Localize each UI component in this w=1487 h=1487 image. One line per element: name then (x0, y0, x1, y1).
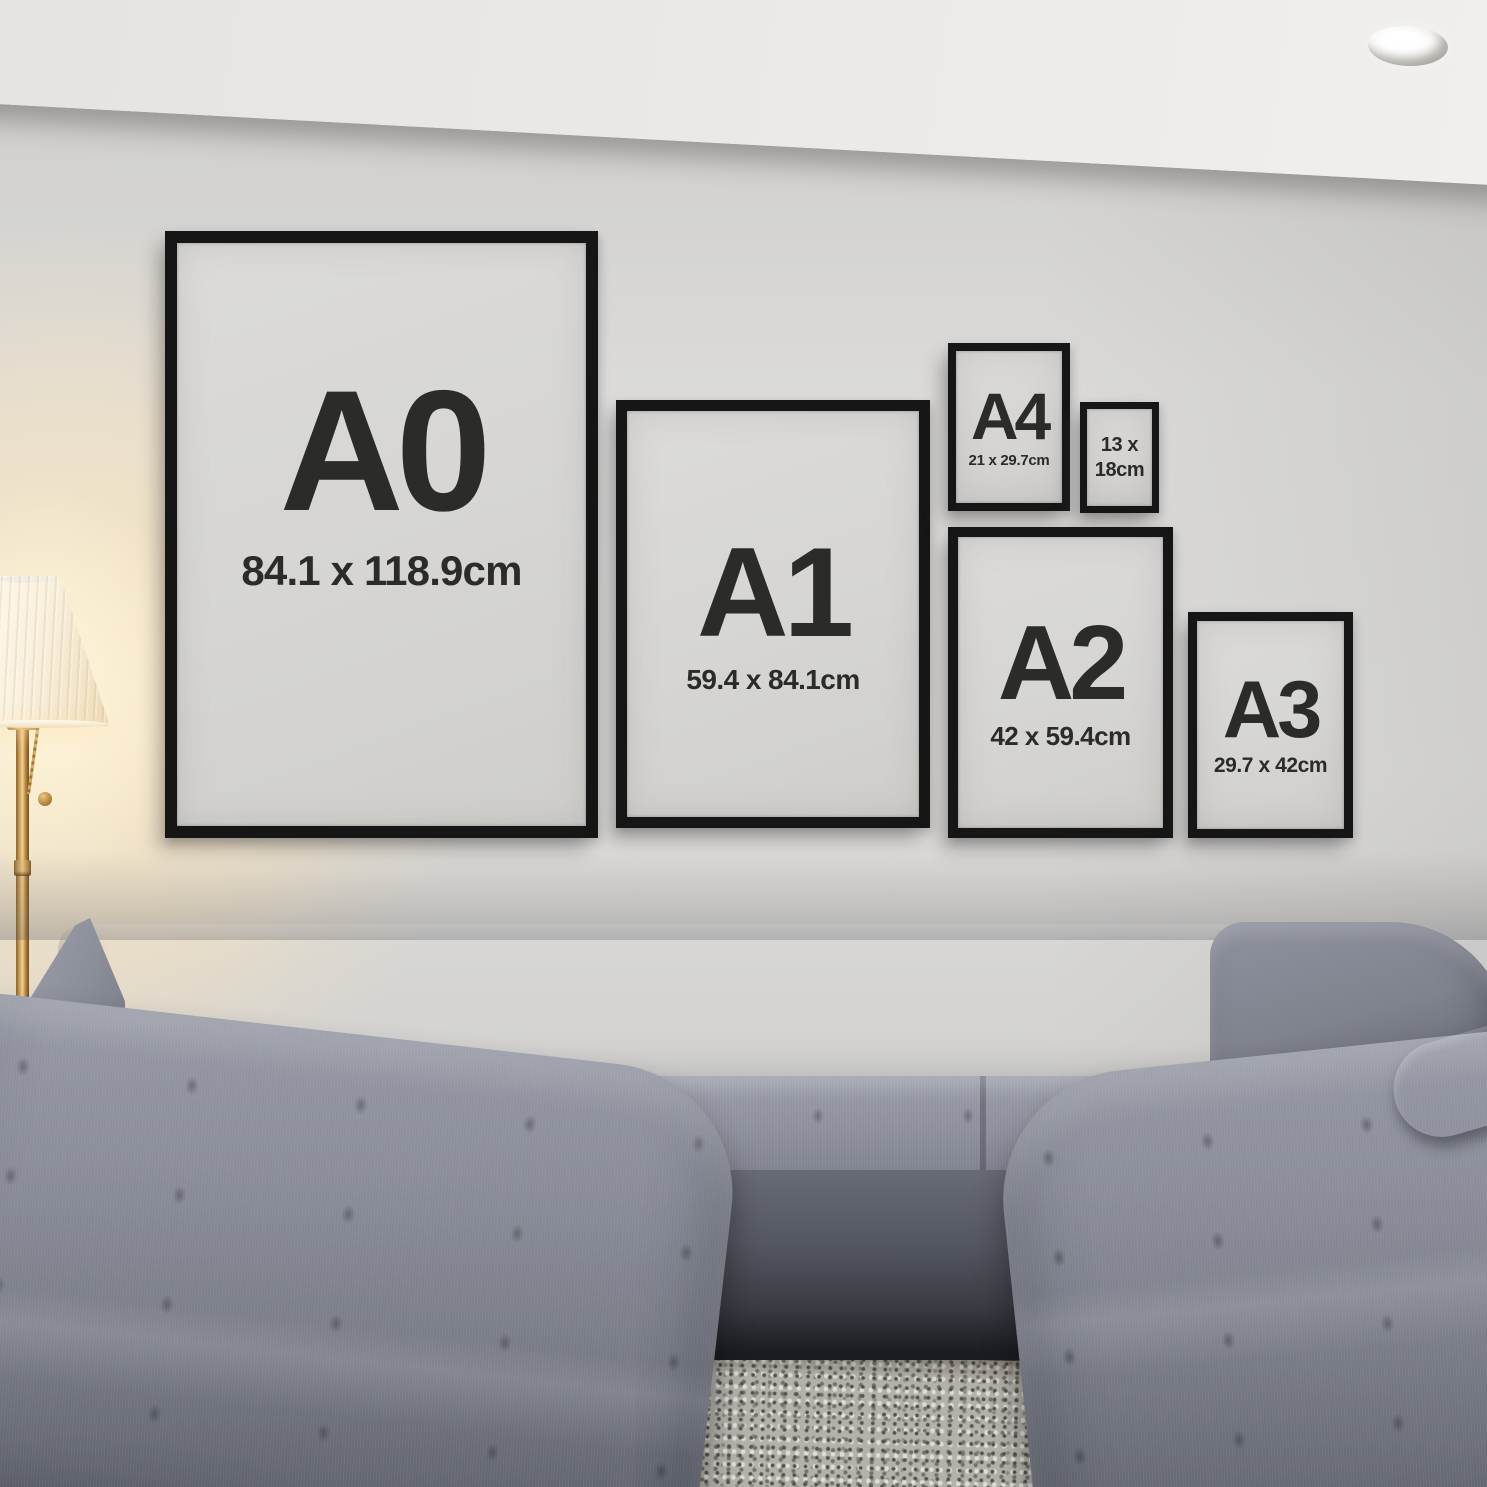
poster-a1: A1 59.4 x 84.1cm (627, 411, 919, 817)
size-code-label: A2 (990, 613, 1130, 714)
poster-a2: A2 42 x 59.4cm (958, 537, 1163, 828)
size-code-label: A4 (969, 385, 1050, 448)
size-dimensions-label: 84.1 x 118.9cm (241, 547, 521, 595)
size-code-label: A3 (1214, 672, 1327, 749)
frame-a4: A4 21 x 29.7cm (948, 343, 1070, 511)
size-dimensions-line2: 18cm (1095, 458, 1145, 483)
poster-13x18: 13 x 18cm (1087, 409, 1152, 506)
size-dimensions-label: 59.4 x 84.1cm (686, 664, 859, 696)
size-dimensions-label: 29.7 x 42cm (1214, 754, 1327, 778)
poster-a0-text: A0 84.1 x 118.9cm (241, 370, 521, 595)
poster-a3: A3 29.7 x 42cm (1197, 621, 1344, 829)
lamp-pull-chain-ball (38, 792, 52, 806)
size-dimensions-label: 21 x 29.7cm (969, 452, 1050, 469)
poster-a4: A4 21 x 29.7cm (956, 351, 1062, 503)
frame-13x18: 13 x 18cm (1080, 402, 1159, 513)
frame-a1: A1 59.4 x 84.1cm (616, 400, 930, 828)
living-room-scene: A0 84.1 x 118.9cm A1 59.4 x 84.1cm A4 21… (0, 0, 1487, 1487)
size-dimensions-label: 42 x 59.4cm (990, 721, 1130, 752)
poster-a1-text: A1 59.4 x 84.1cm (686, 532, 859, 697)
frame-a0: A0 84.1 x 118.9cm (165, 231, 598, 838)
size-code-label: A1 (686, 532, 859, 653)
frame-a3: A3 29.7 x 42cm (1188, 612, 1353, 838)
poster-a2-text: A2 42 x 59.4cm (990, 613, 1130, 753)
poster-a3-text: A3 29.7 x 42cm (1214, 672, 1327, 779)
size-code-label: A0 (241, 370, 521, 533)
size-dimensions-label: 13 x 18cm (1095, 433, 1145, 483)
poster-13x18-text: 13 x 18cm (1095, 433, 1145, 483)
frame-a2: A2 42 x 59.4cm (948, 527, 1173, 838)
size-dimensions-line1: 13 x (1095, 433, 1145, 458)
poster-a0: A0 84.1 x 118.9cm (177, 243, 586, 826)
poster-a4-text: A4 21 x 29.7cm (969, 385, 1050, 469)
